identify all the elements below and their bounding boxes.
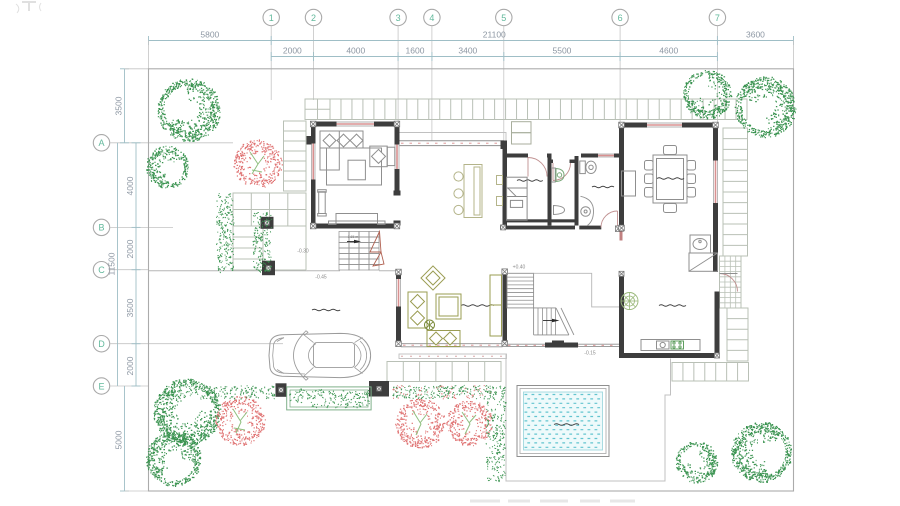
svg-text:C: C [98,265,105,275]
svg-text:2000: 2000 [125,239,135,258]
svg-text:2000: 2000 [125,356,135,375]
svg-text:3: 3 [396,13,401,23]
svg-text:5000: 5000 [114,430,124,449]
svg-text:2000: 2000 [283,46,302,56]
svg-text:1600: 1600 [406,46,425,56]
svg-text:4: 4 [429,13,434,23]
svg-text:4000: 4000 [125,176,135,195]
svg-text:D: D [98,339,105,349]
svg-text:A: A [98,138,104,148]
svg-text:2: 2 [311,13,316,23]
svg-text:7: 7 [715,13,720,23]
svg-text:5500: 5500 [552,46,571,56]
svg-text:3600: 3600 [746,30,765,40]
svg-text:5800: 5800 [200,30,219,40]
svg-text:1.65 m: 1.65 m [348,235,359,239]
svg-text:-0.30: -0.30 [297,249,309,255]
svg-text:3500: 3500 [125,298,135,317]
svg-text:E: E [98,381,104,391]
svg-text:-0.45: -0.45 [315,275,327,281]
svg-text:-0.15: -0.15 [584,351,596,357]
svg-text:B: B [98,223,104,233]
svg-text:+0.40: +0.40 [513,265,526,271]
svg-text:11500: 11500 [107,252,117,275]
svg-text:4000: 4000 [346,46,365,56]
svg-text:6: 6 [618,13,623,23]
svg-text:4600: 4600 [659,46,678,56]
svg-text:1: 1 [269,13,274,23]
svg-text:21100: 21100 [483,30,506,40]
svg-text:3400: 3400 [458,46,477,56]
svg-text:3500: 3500 [114,96,124,115]
svg-text:5: 5 [501,13,506,23]
